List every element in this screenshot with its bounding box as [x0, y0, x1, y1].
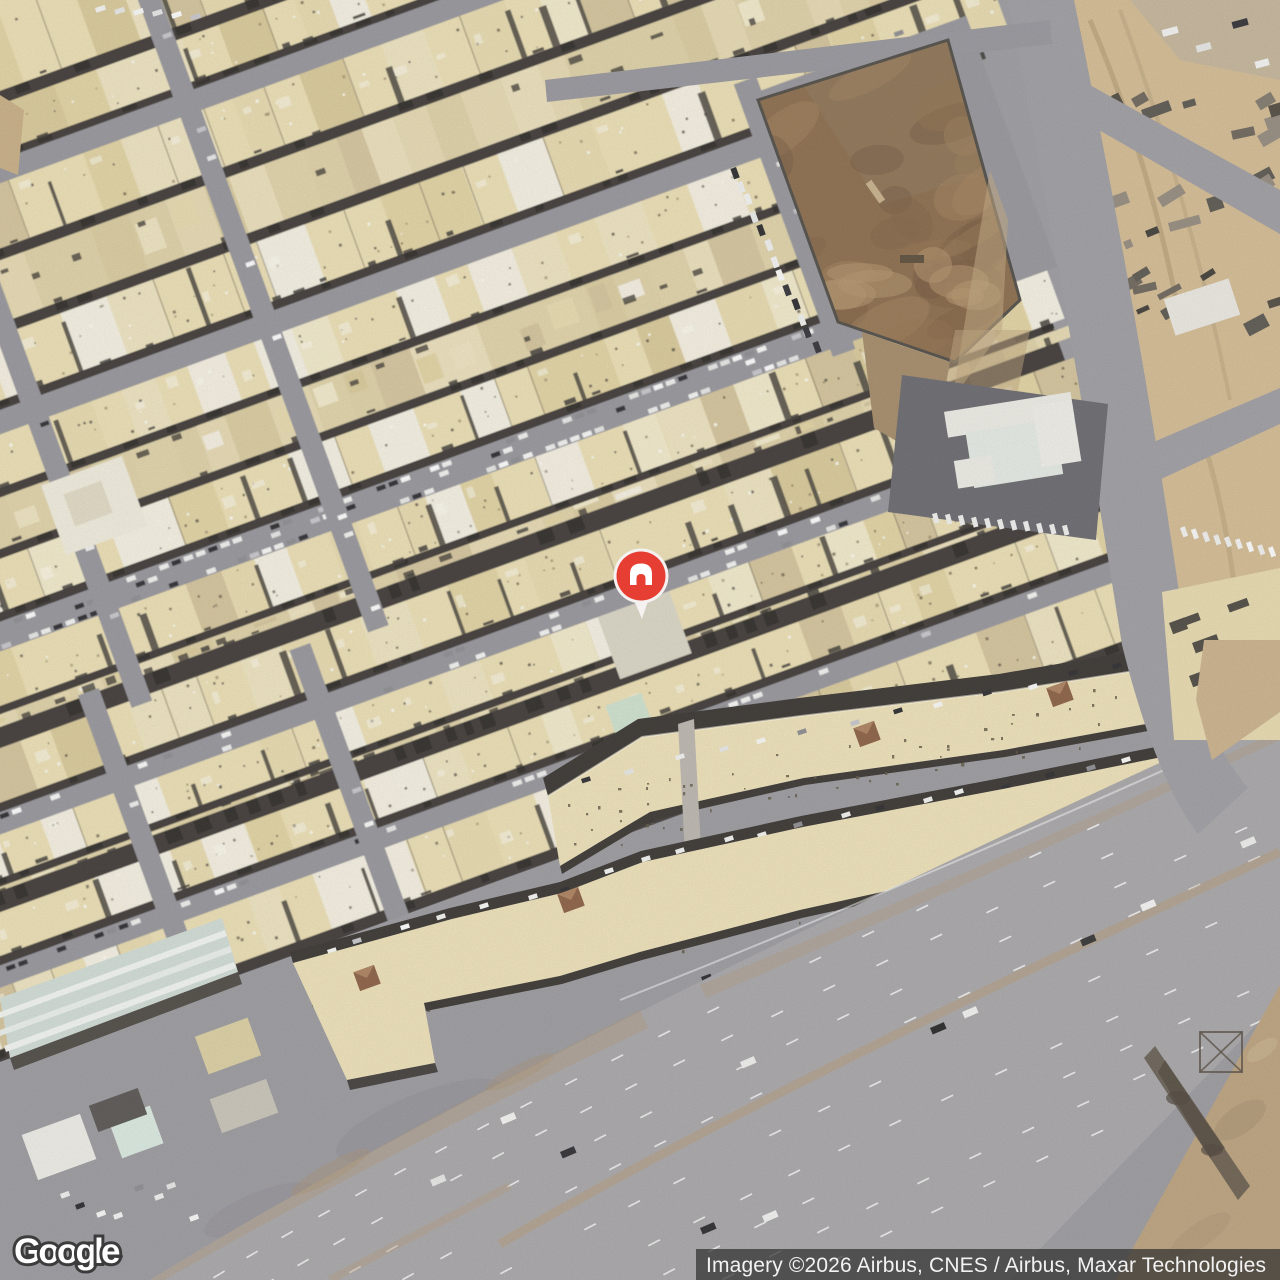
svg-text:Google: Google — [14, 1232, 120, 1271]
svg-text:Imagery ©2026 Airbus, CNES / A: Imagery ©2026 Airbus, CNES / Airbus, Max… — [706, 1254, 1266, 1277]
